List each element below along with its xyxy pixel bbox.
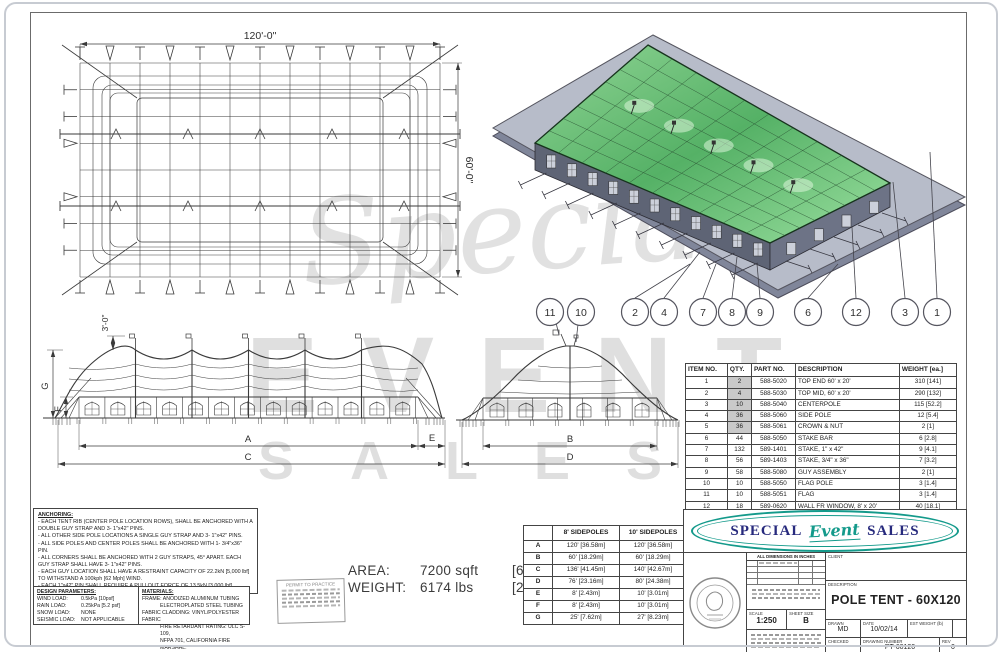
callout-balloon-6: 6 xyxy=(795,299,822,326)
dim-label: 1 xyxy=(934,307,940,319)
title-block: SPECIAL Event SALES ALL DIMENSIONS IN IN… xyxy=(683,509,967,647)
dim-label: 3 xyxy=(902,307,908,319)
sheet-size-value: B xyxy=(789,616,823,625)
design-parameters-box: DESIGN PARAMETERS: WIND LOAD:0.5kPa [10p… xyxy=(33,586,250,625)
material-line: FRAME: ANODIZED ALUMINUM TUBING xyxy=(142,596,246,603)
dim-table-header: 10' SIDEPOLES xyxy=(620,526,687,541)
logo-row: SPECIAL Event SALES xyxy=(684,510,966,553)
anchoring-line: - ALL CORNERS SHALL BE ANCHORED WITH 2 G… xyxy=(38,555,253,569)
anchoring-title: ANCHORING: xyxy=(38,512,253,519)
callout-balloon-8: 8 xyxy=(719,299,746,326)
dim-label: A xyxy=(245,434,252,445)
dim-table-row: F8' [2.43m]10' [3.01m] xyxy=(524,601,687,613)
dim-table-row: B60' [18.29m]60' [18.29m] xyxy=(524,553,687,565)
parts-row: 12588-5020TOP END 60' x 20'310 [141] xyxy=(686,377,957,388)
material-line: FIRE RETARDANT RATING: ULC S-109, xyxy=(142,624,246,638)
callout-balloon-10: 10 xyxy=(568,299,595,326)
parts-row: 536588-5061CROWN & NUT2 [1] xyxy=(686,422,957,433)
dim-label: 4 xyxy=(661,307,667,319)
dim-label: 10 xyxy=(575,307,587,319)
dim-label: C xyxy=(245,452,252,463)
anchoring-notes: ANCHORING: - EACH TENT RIB (CENTER POLE … xyxy=(33,508,258,594)
callout-balloon-12: 12 xyxy=(843,299,870,326)
parts-row: 24588-5030TOP MID, 60' x 20'290 [132] xyxy=(686,388,957,399)
dim-label: B xyxy=(567,434,573,445)
dim-label: 11 xyxy=(545,307,556,319)
parts-header: DESCRIPTION xyxy=(796,364,900,377)
dim-table-header xyxy=(524,526,553,541)
logo-word-event: Event xyxy=(809,520,861,543)
parts-row: 1010588-5050FLAG POLE3 [1.4] xyxy=(686,478,957,489)
date-value: 10/02/14 xyxy=(863,626,905,633)
drawn-value: MD xyxy=(828,626,858,633)
area-label: AREA: xyxy=(348,563,420,580)
scale-value: 1:250 xyxy=(749,616,784,625)
dim-table-row: G25' [7.62m]27' [8.23m] xyxy=(524,613,687,625)
dim-label: 8 xyxy=(729,307,735,319)
area-value: 7200 sqft xyxy=(420,563,512,580)
company-logo: SPECIAL Event SALES xyxy=(691,510,959,552)
description-label: DESCRIPTION xyxy=(828,582,964,587)
dim-label: 2 xyxy=(632,307,638,319)
anchoring-line: - EACH TENT RIB (CENTER POLE LOCATION RO… xyxy=(38,519,253,533)
drawn-field: DRAWNMD xyxy=(826,620,861,637)
parts-row: 1110588-5051FLAG3 [1.4] xyxy=(686,490,957,501)
client-field: CLIENT xyxy=(826,553,966,581)
client-label: CLIENT xyxy=(828,554,964,559)
rev-value: 0 xyxy=(942,644,964,651)
dim-label: 60'-0" xyxy=(463,157,475,184)
checked-field: CHECKED xyxy=(826,638,861,652)
disclaimer-text xyxy=(747,630,825,652)
dim-label: 12 xyxy=(850,307,862,319)
dim-label: E xyxy=(429,433,435,444)
dim-label: 3'-0" xyxy=(100,315,110,332)
drawing-title: POLE TENT - 60X120 xyxy=(828,593,964,607)
rev-field: REV0 xyxy=(940,638,966,652)
anchoring-line: - ALL OTHER SIDE POLE LOCATIONS A SINGLE… xyxy=(38,533,253,540)
dim-label: 7 xyxy=(700,307,706,319)
permit-stamp-title: PERMIT TO PRACTICE xyxy=(281,581,341,588)
design-parameter: SEISMIC LOAD:NOT APPLICABLE xyxy=(37,617,135,624)
spare-field xyxy=(953,620,966,637)
est-weight-field: EST WEIGHT (lb) xyxy=(908,620,953,637)
parts-header: PART NO. xyxy=(751,364,795,377)
parts-row: 958588-5080GUY ASSEMBLY2 [1] xyxy=(686,467,957,478)
general-notes xyxy=(747,585,825,610)
parts-row: 856589-1403STAKE, 3/4" x 36"7 [3.2] xyxy=(686,456,957,467)
parts-row: 7132589-1401STAKE, 1" x 42"9 [4.1] xyxy=(686,445,957,456)
parts-header: WEIGHT [ea.] xyxy=(899,364,956,377)
design-parameter: WIND LOAD:0.5kPa [10psf] xyxy=(37,596,135,603)
sheet-size-label: SHEET SIZE xyxy=(789,611,813,616)
anchoring-line: - ALL SIDE POLES AND CENTER POLES SHALL … xyxy=(38,541,253,555)
material-line: NFPA 701, CALIFORNIA FIRE MARSHAL. xyxy=(142,638,246,652)
plan-view-drawing: 120'-0"60'-0" xyxy=(40,20,470,300)
engineer-seal xyxy=(684,553,747,652)
design-parameter: RAIN LOAD:0.25kPa [5.2 psf] xyxy=(37,603,135,610)
callout-balloon-3: 3 xyxy=(892,299,919,326)
callout-balloon-1: 1 xyxy=(924,299,951,326)
dims-note: ALL DIMENSIONS IN INCHES xyxy=(747,553,825,561)
dim-label: 6 xyxy=(805,307,811,319)
dim-label: G xyxy=(40,382,51,389)
logo-word-special: SPECIAL xyxy=(730,523,802,540)
material-line: FABRIC CLADDING: VINYL/POLYESTER FABRIC xyxy=(142,610,246,624)
callout-balloon-9: 9 xyxy=(747,299,774,326)
design-parameters-title: DESIGN PARAMETERS: xyxy=(37,589,135,596)
date-field: DATE10/02/14 xyxy=(861,620,908,637)
isometric-3d-view: 11102478961231 xyxy=(483,8,988,360)
materials-title: MATERIALS: xyxy=(142,589,246,596)
dim-label: D xyxy=(567,452,574,463)
side-elevation-drawing: AECGF3'-0" xyxy=(33,298,453,483)
dim-table-header: 8' SIDEPOLES xyxy=(553,526,620,541)
parts-header: QTY. xyxy=(727,364,751,377)
parts-header: ITEM NO. xyxy=(686,364,728,377)
drawing-number-field: DRAWING NUMBERPT-60120 xyxy=(861,638,940,652)
parts-row: 310588-5040CENTERPOLE115 [52.2] xyxy=(686,399,957,410)
parts-table: ITEM NO.QTY.PART NO.DESCRIPTIONWEIGHT [e… xyxy=(685,363,957,513)
weight-value: 6174 lbs xyxy=(420,580,512,597)
dim-table-row: E8' [2.43m]10' [3.01m] xyxy=(524,589,687,601)
dim-label: 9 xyxy=(757,307,763,319)
design-parameter: SNOW LOAD:NONE xyxy=(37,610,135,617)
description-field: DESCRIPTION POLE TENT - 60X120 xyxy=(826,581,966,620)
material-line: ELECTROPLATED STEEL TUBING xyxy=(142,603,246,610)
dim-table-row: A120' [36.58m]120' [36.58m] xyxy=(524,541,687,553)
weight-label: WEIGHT: xyxy=(348,580,420,597)
parts-row: 436588-5060SIDE POLE12 [5.4] xyxy=(686,411,957,422)
sidepole-dimension-table: 8' SIDEPOLES10' SIDEPOLESA120' [36.58m]1… xyxy=(523,525,687,625)
callout-balloon-11: 11 xyxy=(537,299,564,326)
dim-table-row: C136' [41.45m]140' [42.67m] xyxy=(524,565,687,577)
logo-word-sales: SALES xyxy=(867,523,920,540)
permit-stamp: PERMIT TO PRACTICE xyxy=(276,578,345,624)
callout-balloon-7: 7 xyxy=(690,299,717,326)
anchoring-line: - EACH GUY LOCATION SHALL HAVE A RESTRAI… xyxy=(38,569,253,583)
callout-balloon-2: 2 xyxy=(622,299,649,326)
revision-scale-cell: ALL DIMENSIONS IN INCHES SCALE 1:250 SHE… xyxy=(747,553,826,652)
parts-row: 644588-5050STAKE BAR6 [2.8] xyxy=(686,433,957,444)
dim-table-row: D76' [23.16m]80' [24.38m] xyxy=(524,577,687,589)
dim-label: F xyxy=(53,406,64,412)
callout-balloon-4: 4 xyxy=(651,299,678,326)
dim-label: 120'-0" xyxy=(244,30,277,42)
drawing-number-value: PT-60120 xyxy=(863,644,937,651)
